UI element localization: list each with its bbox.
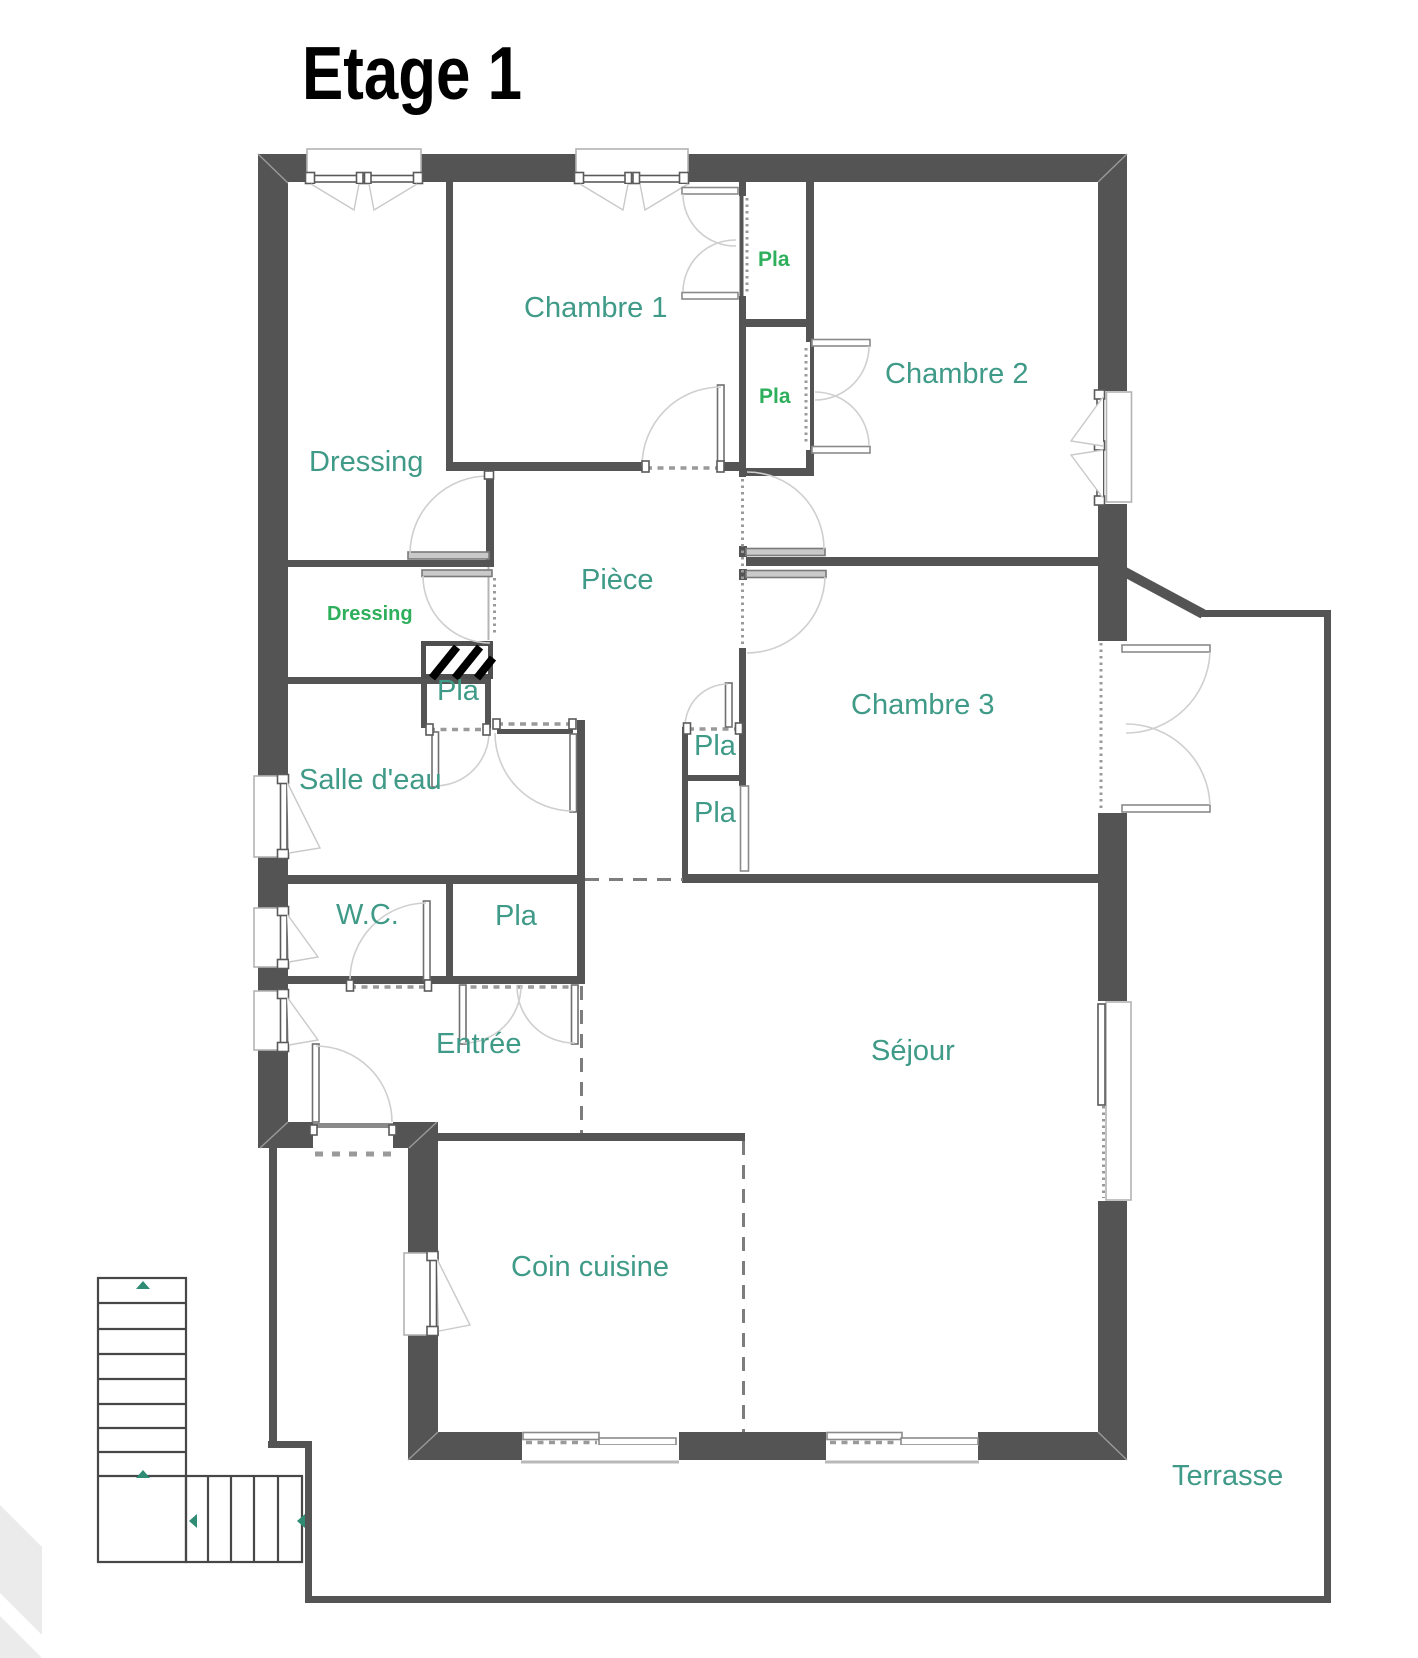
svg-text:Etage 1: Etage 1 [302, 31, 522, 115]
svg-text:Chambre 2: Chambre 2 [885, 358, 1028, 390]
svg-text:Pla: Pla [694, 797, 737, 829]
svg-text:Terrasse: Terrasse [1172, 1460, 1283, 1492]
svg-text:Pla: Pla [758, 248, 790, 271]
svg-text:Séjour: Séjour [871, 1035, 955, 1067]
svg-text:Pla: Pla [495, 900, 538, 932]
svg-text:Pla: Pla [694, 730, 737, 762]
svg-text:Coin cuisine: Coin cuisine [511, 1251, 669, 1283]
svg-text:Chambre 3: Chambre 3 [851, 689, 994, 721]
svg-text:Dressing: Dressing [327, 603, 413, 625]
svg-text:Dressing: Dressing [309, 446, 423, 478]
svg-text:W.C.: W.C. [336, 899, 399, 931]
svg-text:Pièce: Pièce [581, 564, 654, 596]
svg-text:Salle d'eau: Salle d'eau [299, 764, 442, 796]
svg-text:Pla: Pla [759, 385, 791, 408]
svg-text:Chambre 1: Chambre 1 [524, 292, 667, 324]
svg-text:Pla: Pla [437, 675, 480, 707]
svg-text:Entrée: Entrée [436, 1028, 521, 1060]
